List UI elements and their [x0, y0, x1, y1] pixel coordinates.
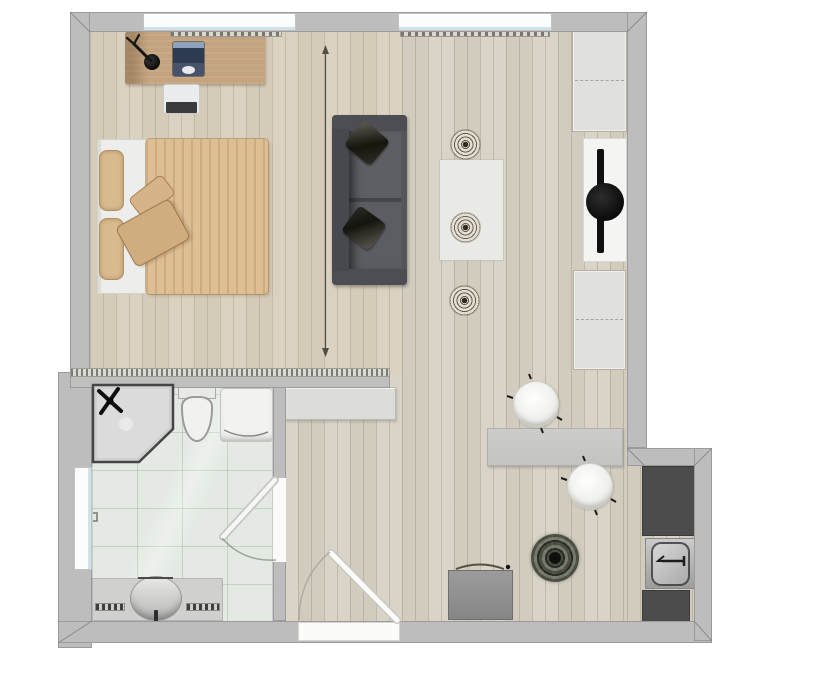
sofa-armrest: [332, 269, 407, 285]
desk-lamp[interactable]: [144, 54, 160, 70]
sofa-backrest: [332, 129, 349, 271]
potted-plant[interactable]: [531, 534, 579, 582]
sideboard[interactable]: [285, 387, 396, 420]
bed-pillow: [99, 150, 124, 211]
bathroom-vent: [186, 603, 220, 611]
wardrobe-rail: [576, 319, 623, 320]
window[interactable]: [143, 13, 296, 31]
bathroom-door-opening[interactable]: [273, 478, 286, 562]
rug[interactable]: [440, 160, 503, 260]
bathroom-vent: [95, 603, 125, 611]
wardrobe[interactable]: [572, 30, 627, 132]
kitchen-sink-basin: [651, 542, 690, 586]
rattan-pouf[interactable]: [451, 130, 480, 159]
wall-right: [627, 12, 647, 448]
kitchen-counter[interactable]: [642, 590, 690, 622]
window[interactable]: [398, 13, 552, 31]
radiator: [170, 31, 282, 37]
rattan-pouf[interactable]: [451, 213, 480, 242]
dining-table[interactable]: [487, 428, 623, 466]
dining-chair[interactable]: [513, 381, 559, 427]
wall-kitchen-right: [694, 448, 712, 641]
dining-chair[interactable]: [567, 463, 613, 509]
storage-chest[interactable]: [448, 570, 513, 620]
wall-room-divider: [70, 368, 388, 386]
wall-face: [70, 376, 390, 388]
wall-left: [70, 12, 90, 375]
kitchen-sink[interactable]: [645, 538, 695, 589]
wardrobe-rail: [575, 80, 624, 81]
round-basin[interactable]: [130, 576, 182, 621]
desk-chair[interactable]: [163, 84, 200, 114]
desk-chair-backrest: [166, 102, 197, 113]
wardrobe[interactable]: [573, 270, 626, 370]
round-speaker-icon: [586, 183, 624, 221]
laptop-trackpad: [182, 66, 195, 74]
window[interactable]: [74, 467, 92, 570]
entrance-door-opening[interactable]: [298, 622, 400, 641]
floor-plan-canvas: [0, 0, 815, 685]
radiator: [400, 31, 550, 37]
rattan-pouf[interactable]: [450, 286, 479, 315]
media-unit[interactable]: [583, 138, 627, 262]
laptop[interactable]: [173, 42, 204, 76]
washbasin-cabinet[interactable]: [220, 388, 273, 442]
kitchen-counter[interactable]: [642, 466, 695, 536]
